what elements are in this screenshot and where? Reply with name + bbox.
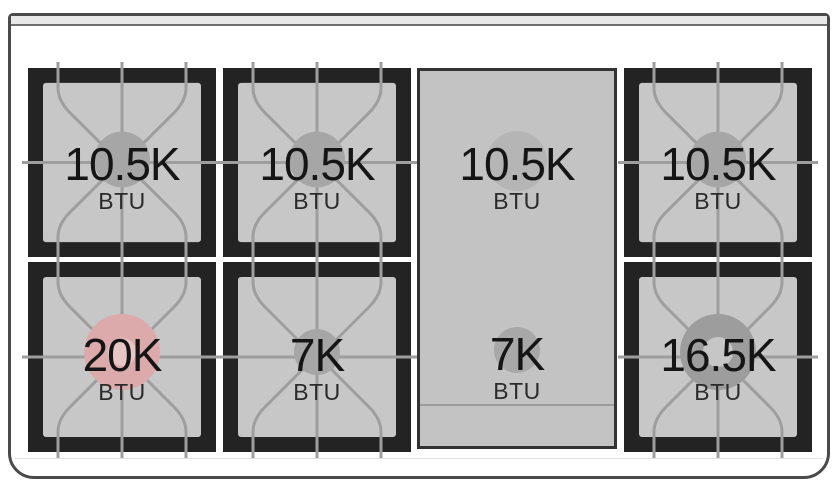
griddle-plate: 10.5K BTU 7K BTU	[417, 68, 617, 449]
burner-grate-bottom-center: 7K BTU	[223, 262, 411, 452]
btu-unit: BTU	[417, 380, 617, 403]
range-cooktop-diagram: 10.5K BTU 10.5K BTU	[8, 13, 830, 479]
btu-value: 16.5K	[624, 335, 812, 375]
burner-grate-bottom-left: 20K BTU	[28, 262, 216, 452]
burner-grate-top-center: 10.5K BTU	[223, 68, 411, 257]
btu-unit: BTU	[624, 190, 812, 213]
btu-unit: BTU	[417, 190, 617, 213]
btu-value: 10.5K	[223, 144, 411, 184]
btu-unit: BTU	[28, 381, 216, 404]
btu-unit: BTU	[28, 190, 216, 213]
front-seam-line	[15, 458, 823, 459]
burner-label: 10.5K BTU	[624, 144, 812, 213]
burner-label: 10.5K BTU	[223, 144, 411, 213]
btu-value: 10.5K	[624, 144, 812, 184]
back-trim	[11, 16, 827, 26]
btu-value: 10.5K	[417, 144, 617, 184]
burner-label: 7K BTU	[417, 334, 617, 403]
btu-unit: BTU	[223, 190, 411, 213]
btu-unit: BTU	[223, 381, 411, 404]
burner-label: 20K BTU	[28, 335, 216, 404]
burner-grate-top-left: 10.5K BTU	[28, 68, 216, 257]
btu-value: 7K	[223, 335, 411, 375]
btu-value: 20K	[28, 335, 216, 375]
burner-label: 7K BTU	[223, 335, 411, 404]
burner-label: 16.5K BTU	[624, 335, 812, 404]
btu-unit: BTU	[624, 381, 812, 404]
burner-label: 10.5K BTU	[417, 144, 617, 213]
burner-label: 10.5K BTU	[28, 144, 216, 213]
burner-grate-bottom-right: 16.5K BTU	[624, 262, 812, 452]
btu-value: 7K	[417, 334, 617, 374]
burner-grate-top-right: 10.5K BTU	[624, 68, 812, 257]
btu-value: 10.5K	[28, 144, 216, 184]
